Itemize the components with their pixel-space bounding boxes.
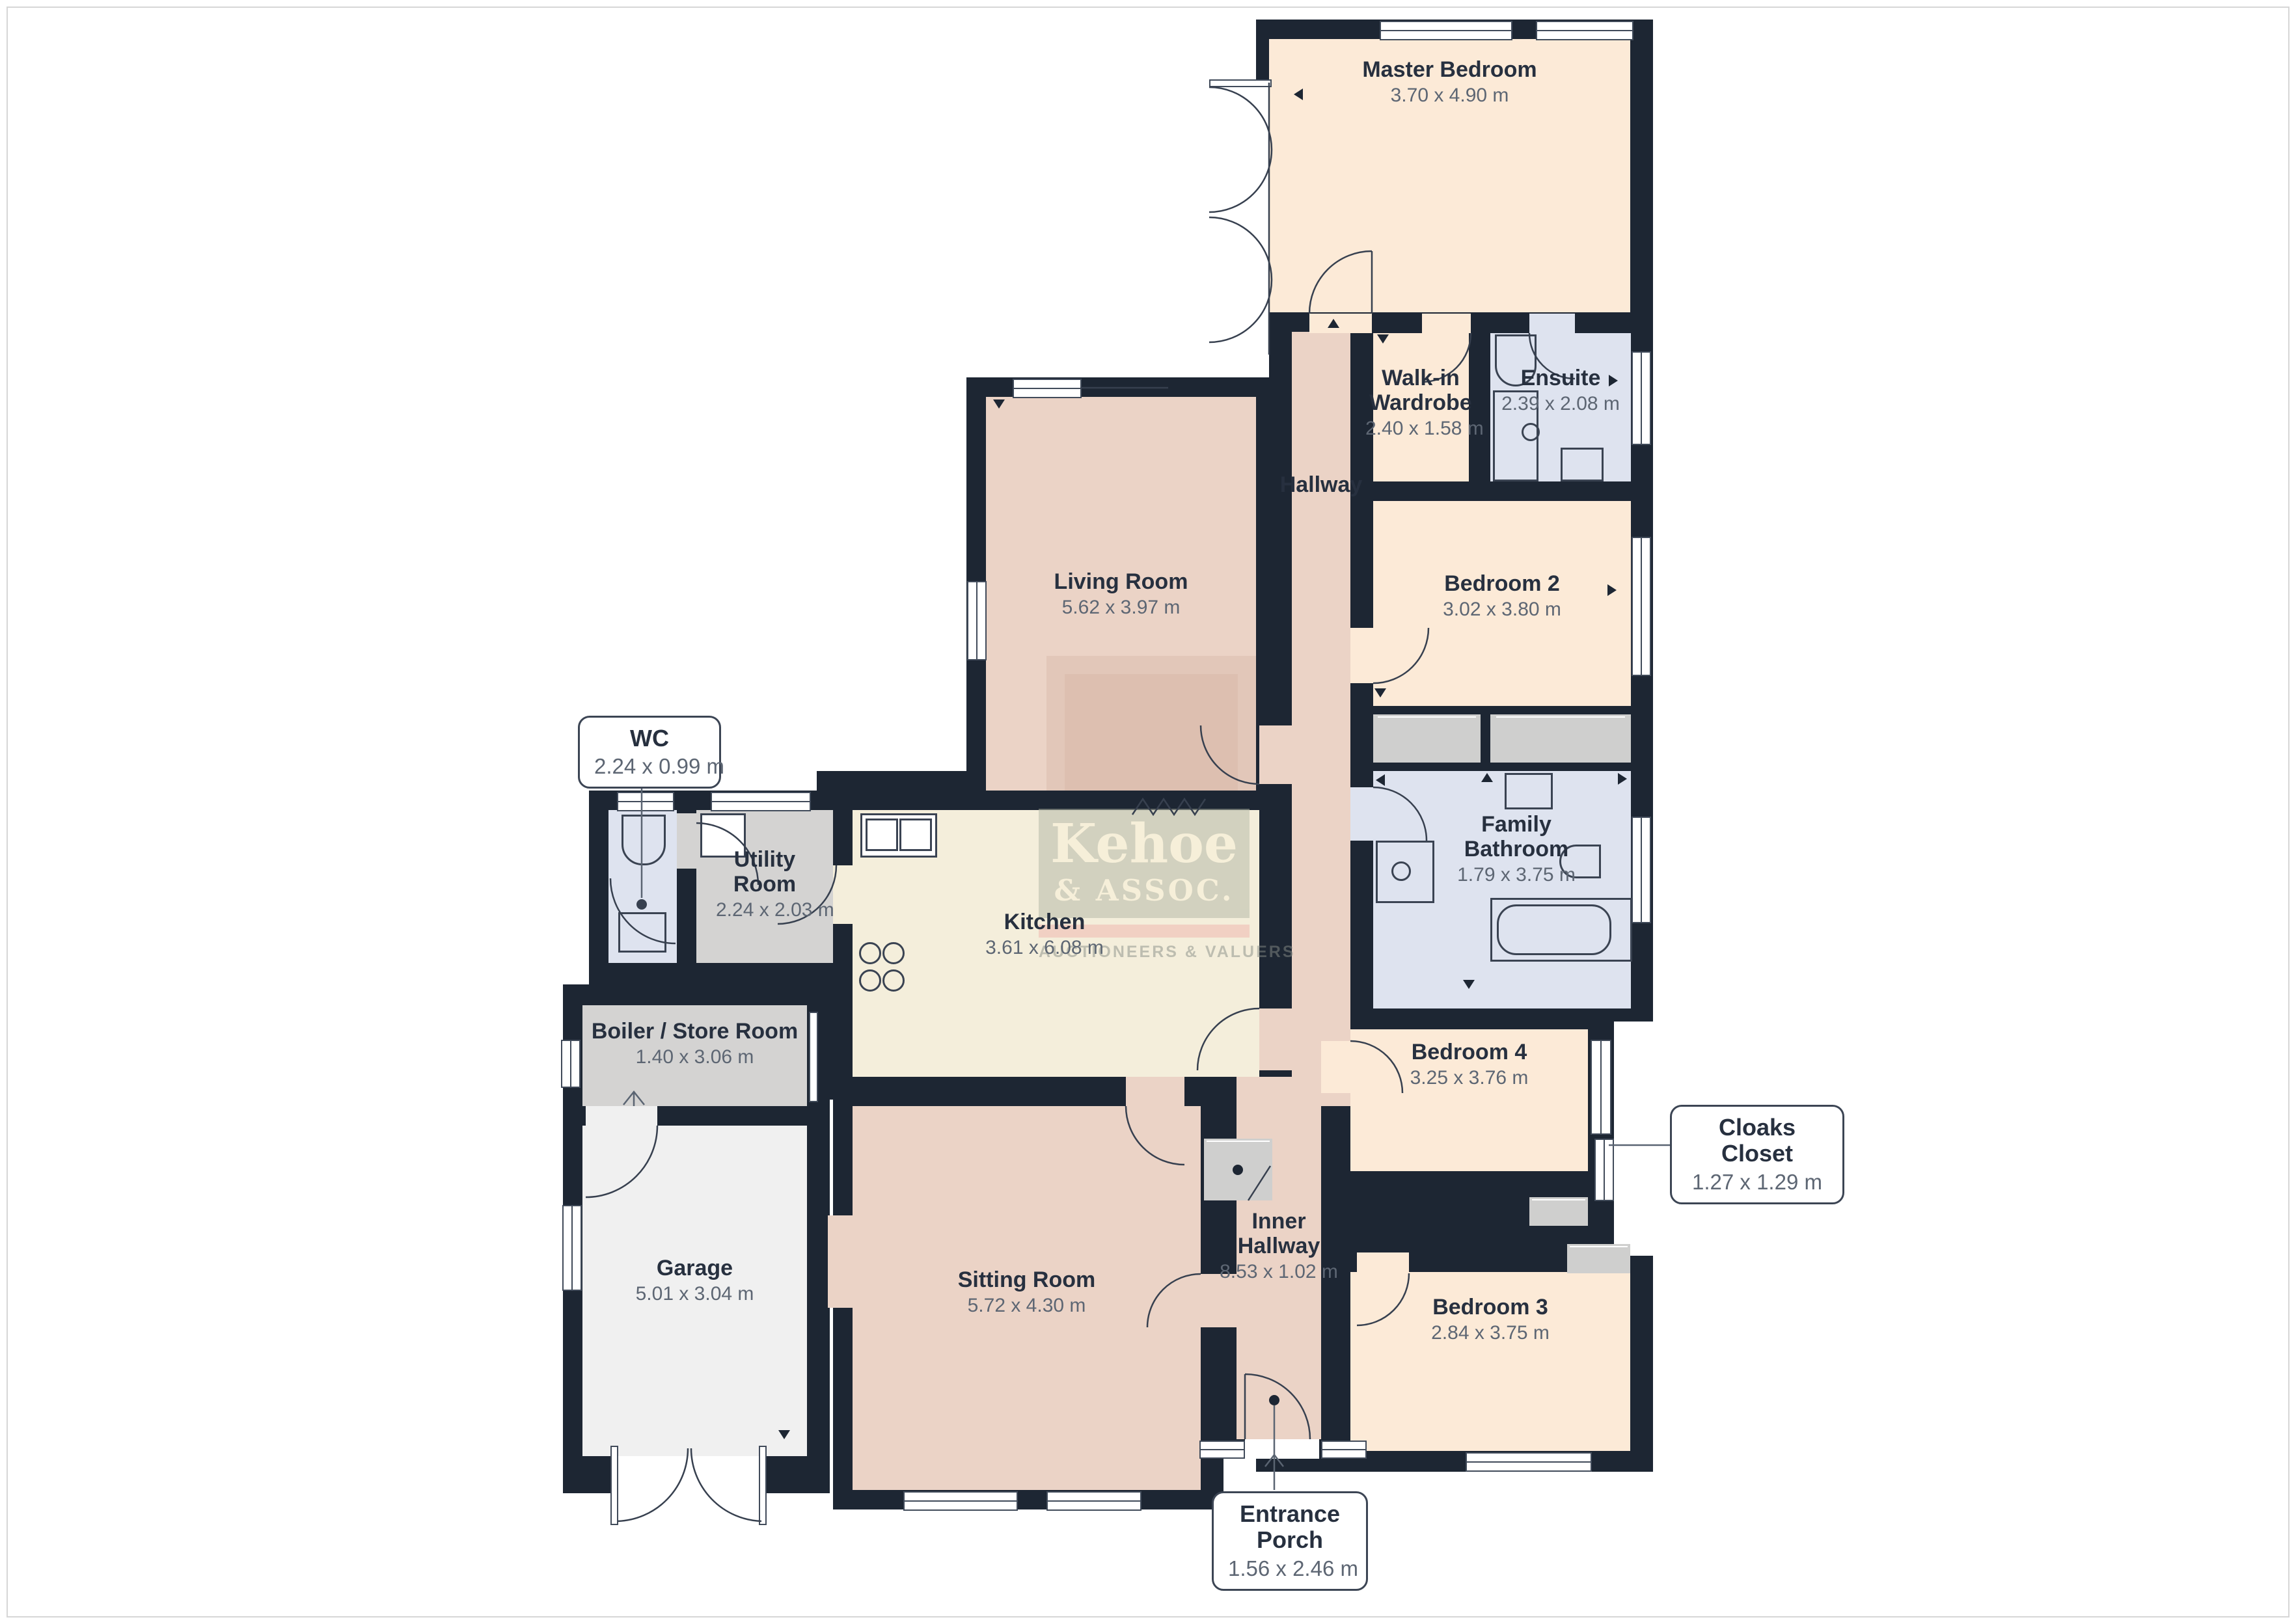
direction-marker xyxy=(993,399,1005,409)
window xyxy=(1632,537,1651,676)
watermark-logo-block: Kehoe & ASSOC. xyxy=(1039,809,1250,918)
shower-control-icon xyxy=(1391,861,1411,881)
label-hallway: Hallway xyxy=(1266,472,1376,497)
living-room-rug-inner xyxy=(1065,674,1238,791)
window xyxy=(1591,1040,1611,1135)
bathtub-inner xyxy=(1497,904,1611,955)
direction-marker xyxy=(1463,980,1475,989)
window xyxy=(1466,1452,1592,1472)
window xyxy=(1536,21,1633,40)
door-leaf xyxy=(809,1012,818,1102)
callout-wc: WC 2.24 x 0.99 m xyxy=(578,716,721,789)
watermark-subtitle: & ASSOC. xyxy=(1039,873,1250,908)
label-bedroom-4: Bedroom 4 3.25 x 3.76 m xyxy=(1350,1040,1588,1089)
label-utility-room: Utility Room 2.24 x 2.03 m xyxy=(716,847,813,921)
window xyxy=(562,1205,582,1291)
door-gap xyxy=(1245,1439,1319,1459)
hob-ring-icon xyxy=(882,942,905,964)
watermark-title: Kehoe xyxy=(1039,819,1250,870)
porch-dot xyxy=(1269,1395,1279,1405)
window-sidelight xyxy=(1199,1441,1245,1459)
door-gap xyxy=(1259,725,1292,784)
garage-door-leaf xyxy=(759,1446,767,1525)
direction-marker xyxy=(1377,334,1389,344)
label-ensuite: Ensuite 2.39 x 2.08 m xyxy=(1494,366,1628,415)
door-gap xyxy=(1350,628,1373,683)
door-gap xyxy=(586,1106,657,1126)
door-gap xyxy=(1350,787,1373,841)
sink-icon xyxy=(618,912,666,953)
callout-cloaks-closet: Cloaks Closet 1.27 x 1.29 m xyxy=(1670,1105,1844,1204)
window xyxy=(1013,379,1082,398)
window xyxy=(1046,1491,1141,1511)
window xyxy=(1632,817,1651,923)
fireplace-alcove xyxy=(828,1215,854,1308)
label-bedroom-2: Bedroom 2 3.02 x 3.80 m xyxy=(1373,571,1631,621)
label-bedroom-3: Bedroom 3 2.84 x 3.75 m xyxy=(1350,1295,1630,1344)
door-gap xyxy=(1321,1041,1350,1093)
room-hallway xyxy=(1292,332,1350,1106)
label-master-bedroom: Master Bedroom 3.70 x 4.90 m xyxy=(1269,57,1630,107)
window xyxy=(1632,351,1651,445)
kitchen-sink-basin xyxy=(899,819,932,851)
label-garage: Garage 5.01 x 3.04 m xyxy=(582,1256,807,1305)
french-door-leaf xyxy=(1209,79,1272,87)
label-living-room: Living Room 5.62 x 3.97 m xyxy=(986,569,1256,619)
window-sidelight xyxy=(1321,1441,1367,1459)
door-gap xyxy=(1529,314,1575,333)
closet-sliding-right xyxy=(1490,714,1631,763)
hob-ring-icon xyxy=(859,969,881,992)
sink-icon xyxy=(1505,773,1553,809)
floorplan-canvas: Kehoe & ASSOC. AUCTIONEERS & VALUERS Mas… xyxy=(0,0,2296,1624)
window xyxy=(967,581,987,660)
toilet-icon xyxy=(622,815,666,865)
direction-marker xyxy=(778,1430,790,1439)
door-gap xyxy=(833,865,853,924)
closet-sliding-left xyxy=(1373,714,1481,763)
garage-door-leaf xyxy=(610,1446,618,1525)
hob-ring-icon xyxy=(882,969,905,992)
label-walk-in-wardrobe: Walk-in Wardrobe 2.40 x 1.58 m xyxy=(1365,366,1476,440)
callout-entrance-porch: Entrance Porch 1.56 x 2.46 m xyxy=(1212,1491,1368,1591)
direction-marker xyxy=(1374,688,1386,697)
window xyxy=(711,792,811,811)
door-gap xyxy=(1422,314,1471,333)
door-gap xyxy=(677,813,696,869)
shower-control-icon xyxy=(1522,423,1540,441)
sink-icon xyxy=(1561,448,1604,481)
press-cabinet xyxy=(1529,1197,1588,1226)
window-cloaks xyxy=(1594,1139,1614,1201)
direction-marker xyxy=(1481,773,1493,782)
door-gap xyxy=(1309,314,1372,333)
window xyxy=(617,792,674,811)
window xyxy=(1380,21,1512,40)
label-kitchen: Kitchen 3.61 x 6.08 m xyxy=(944,910,1145,959)
kitchen-sink-basin xyxy=(866,819,898,851)
label-sitting-room: Sitting Room 5.72 x 4.30 m xyxy=(853,1267,1201,1317)
garage-door-opening xyxy=(617,1456,760,1493)
direction-marker xyxy=(1328,319,1339,328)
direction-marker xyxy=(1376,774,1385,786)
label-family-bathroom: Family Bathroom 1.79 x 3.75 m xyxy=(1455,812,1578,886)
door-gap xyxy=(1357,1252,1409,1272)
direction-marker xyxy=(1618,773,1627,785)
press-cabinet xyxy=(1567,1244,1630,1273)
label-boiler-store: Boiler / Store Room 1.40 x 3.06 m xyxy=(582,1019,807,1068)
door-gap xyxy=(1126,1077,1184,1106)
label-inner-hallway: Inner Hallway 8.53 x 1.02 m xyxy=(1204,1209,1354,1283)
window xyxy=(561,1040,581,1088)
hob-ring-icon xyxy=(859,942,881,964)
junction-closet-dot xyxy=(1233,1165,1243,1175)
window xyxy=(903,1491,1018,1511)
door-gap xyxy=(1259,1008,1292,1070)
